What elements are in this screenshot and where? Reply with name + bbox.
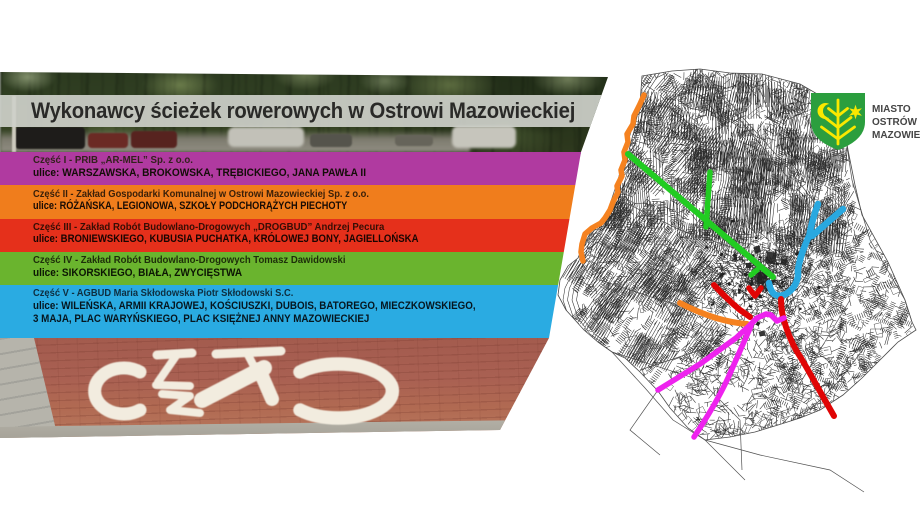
svg-text:MIASTO: MIASTO — [872, 104, 911, 115]
svg-text:MAZOWIECKA: MAZOWIECKA — [872, 130, 920, 141]
svg-text:OSTRÓW: OSTRÓW — [872, 115, 918, 128]
